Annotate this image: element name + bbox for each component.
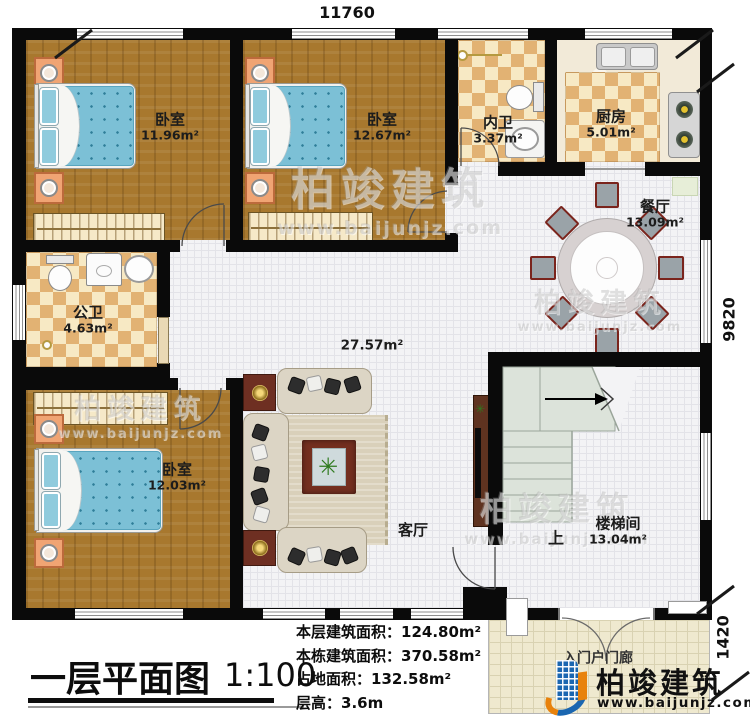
bed-headboard — [245, 84, 250, 168]
sofa-cushion — [324, 549, 340, 565]
title-underline — [28, 698, 274, 703]
title-underline-thin — [28, 706, 304, 708]
stat-label: 本层建筑面积： — [296, 623, 401, 641]
watermark-brand: 柏竣建筑 — [518, 281, 683, 320]
logo-building-icon — [556, 660, 578, 700]
toilet-icon — [46, 255, 74, 264]
watermark-url: www.baijunjz.com — [277, 217, 503, 239]
dimension-right-main: 9820 — [720, 290, 739, 350]
direction-label: 上 — [548, 531, 564, 548]
watermark-brand: 柏竣建筑 — [58, 387, 223, 426]
pillow — [40, 88, 58, 125]
washing-machine-icon — [86, 253, 122, 286]
room-label-bedroom2: 卧室 12.67m² — [353, 112, 411, 142]
room-label-bedroom3: 卧室 12.03m² — [148, 462, 206, 492]
wall-bed3-right — [230, 378, 243, 608]
pillow — [42, 492, 60, 528]
wall-bed2-bottom — [243, 240, 458, 252]
watermark-url: www.baijunjz.com — [58, 426, 223, 441]
room-area: 27.57m² — [341, 339, 404, 354]
window — [77, 29, 183, 39]
room-label-dining: 餐厅 13.09m² — [626, 199, 684, 229]
watermark: 柏竣建筑 www.baijunjz.com — [277, 153, 503, 239]
watermark: 柏竣建筑 www.baijunjz.com — [58, 387, 223, 441]
window — [701, 240, 711, 343]
dining-chair — [595, 182, 619, 208]
room-name: 楼梯间 — [589, 516, 647, 532]
stat-label: 占地面积： — [296, 670, 371, 688]
dining-chair — [530, 256, 556, 280]
room-area: 12.03m² — [148, 478, 206, 492]
wall-bed1-bottom-a — [26, 240, 180, 252]
window — [585, 29, 672, 39]
lamp-icon — [40, 420, 58, 438]
sofa-cushion — [254, 467, 269, 482]
pillow — [42, 453, 60, 489]
sofa-left — [243, 413, 289, 531]
stat-row: 占地面积：132.58m² — [296, 668, 481, 692]
wall-publicbath-right-a — [157, 252, 170, 317]
room-label-kitchen: 厨房 5.01m² — [586, 109, 635, 139]
end-table — [243, 530, 276, 566]
burner-icon — [676, 101, 693, 118]
wall-porch-corner — [463, 587, 507, 620]
stat-row: 本栋建筑面积：370.58m² — [296, 645, 481, 669]
sofa-cushion — [252, 445, 268, 461]
window — [411, 609, 463, 619]
window — [292, 29, 395, 39]
dimension-top: 11760 — [302, 3, 392, 22]
burner-icon — [676, 131, 693, 148]
watermark-brand: 柏竣建筑 — [277, 153, 503, 217]
room-label-public-bath: 公卫 4.63m² — [63, 305, 112, 335]
plant-icon: ✳ — [318, 453, 338, 481]
window — [263, 609, 325, 619]
toilet-bowl-icon — [48, 265, 72, 291]
sofa-cushion — [325, 379, 341, 395]
sink-basin — [601, 47, 626, 67]
stove-icon — [668, 92, 700, 158]
public-bath-door — [158, 317, 169, 364]
wall-bed1-bottom-b — [226, 240, 243, 252]
shower-bar-icon — [468, 54, 502, 56]
room-name: 厨房 — [586, 109, 635, 125]
room-area: 13.04m² — [589, 532, 647, 546]
stat-label: 层高： — [296, 694, 341, 712]
sofa-cushion — [252, 424, 269, 441]
room-label-bedroom1: 卧室 11.96m² — [141, 112, 199, 142]
lamp-icon — [40, 179, 58, 197]
room-area: 5.01m² — [586, 125, 635, 139]
sofa-cushion — [288, 548, 305, 565]
room-name: 卧室 — [148, 462, 206, 478]
plant-icon: ✳ — [475, 402, 485, 416]
room-name: 公卫 — [63, 305, 112, 321]
end-table-medallion — [252, 385, 268, 401]
toilet-bowl-icon — [506, 85, 533, 110]
window — [13, 285, 25, 340]
room-area: 4.63m² — [63, 321, 112, 335]
wall-kitchen-bottom-b — [645, 162, 712, 176]
stat-value: 124.80m² — [401, 623, 481, 641]
dining-chair — [658, 256, 684, 280]
sink-basin — [630, 47, 655, 67]
sofa-cushion — [341, 547, 358, 564]
room-label-inner-bath: 内卫 3.37m² — [473, 115, 522, 145]
plant-box — [672, 177, 698, 196]
nightstand — [245, 172, 275, 204]
nightstand — [34, 172, 64, 204]
room-area: 3.37m² — [473, 131, 522, 145]
plan-title: 一层平面图 — [30, 650, 210, 702]
sofa-cushion — [253, 506, 269, 522]
dining-table-center — [596, 257, 618, 279]
window — [438, 29, 528, 39]
room-name: 内卫 — [473, 115, 522, 131]
room-name: 餐厅 — [626, 199, 684, 215]
lamp-icon — [40, 64, 58, 82]
room-area: 11.96m² — [141, 128, 199, 142]
sofa-cushion — [288, 377, 305, 394]
sofa-cushion — [307, 376, 322, 391]
window — [701, 433, 711, 520]
bed-headboard — [34, 449, 39, 531]
porch-step — [668, 601, 707, 614]
stat-value: 370.58m² — [401, 647, 481, 665]
bed-headboard — [34, 84, 39, 168]
end-table — [243, 374, 276, 411]
pillow — [251, 88, 269, 125]
end-table-medallion — [252, 540, 268, 556]
lamp-icon — [40, 544, 58, 562]
lamp-icon — [251, 179, 269, 197]
watermark: 柏竣建筑 www.baijunjz.com — [518, 281, 683, 335]
room-name: 卧室 — [141, 112, 199, 128]
living-name-label: 客厅 — [398, 523, 428, 539]
room-name: 客厅 — [398, 523, 428, 539]
wall-dining-stair — [488, 352, 712, 367]
stair-up-label: 上 — [548, 531, 564, 548]
room-area: 12.67m² — [353, 128, 411, 142]
brand-website: www.baijunjz.com — [597, 695, 750, 711]
stat-label: 本栋建筑面积： — [296, 647, 401, 665]
wall-bath-kitchen — [545, 28, 557, 176]
window — [340, 609, 393, 619]
washer-drum-icon — [96, 265, 112, 277]
floor-plan-canvas: ✳ ✳ — [0, 0, 750, 728]
pillow — [40, 128, 58, 165]
lamp-icon — [251, 64, 269, 82]
entrance-door-opening — [558, 608, 655, 620]
room-label-stairwell: 楼梯间 13.04m² — [589, 516, 647, 546]
shower-head-icon — [457, 50, 468, 61]
room-area: 13.09m² — [626, 215, 684, 229]
toilet-icon — [533, 82, 544, 112]
brand-logo-icon — [544, 660, 592, 716]
stat-row: 层高：3.6m — [296, 692, 481, 716]
floor-drain-icon — [42, 340, 52, 350]
wardrobe-rod — [37, 228, 162, 230]
sofa-cushion — [251, 488, 268, 505]
wall-bed1-bed2 — [230, 28, 243, 252]
wall-kitchen-bottom-a — [557, 162, 585, 176]
room-name: 卧室 — [353, 112, 411, 128]
sofa-cushion — [307, 547, 322, 562]
kitchen-sink-icon — [596, 43, 658, 70]
stat-value: 132.58m² — [371, 670, 451, 688]
brand-logo: 柏竣建筑 www.baijunjz.com — [544, 658, 744, 718]
wall-innerbath-bottom-b — [498, 162, 557, 176]
stat-row: 本层建筑面积：124.80m² — [296, 621, 481, 645]
sink-icon — [124, 255, 154, 283]
sofa-bottom — [277, 527, 367, 573]
window — [75, 609, 183, 619]
watermark-url: www.baijunjz.com — [518, 320, 683, 335]
nightstand — [34, 538, 64, 568]
sofa-cushion — [344, 376, 360, 392]
stat-value: 3.6m — [341, 694, 383, 712]
area-stats: 本层建筑面积：124.80m² 本栋建筑面积：370.58m² 占地面积：132… — [296, 621, 481, 715]
logo-building-icon — [578, 671, 587, 700]
sofa-top — [277, 368, 372, 414]
living-area-label: 27.57m² — [341, 339, 404, 354]
porch-step — [506, 598, 528, 636]
pillow — [251, 128, 269, 165]
